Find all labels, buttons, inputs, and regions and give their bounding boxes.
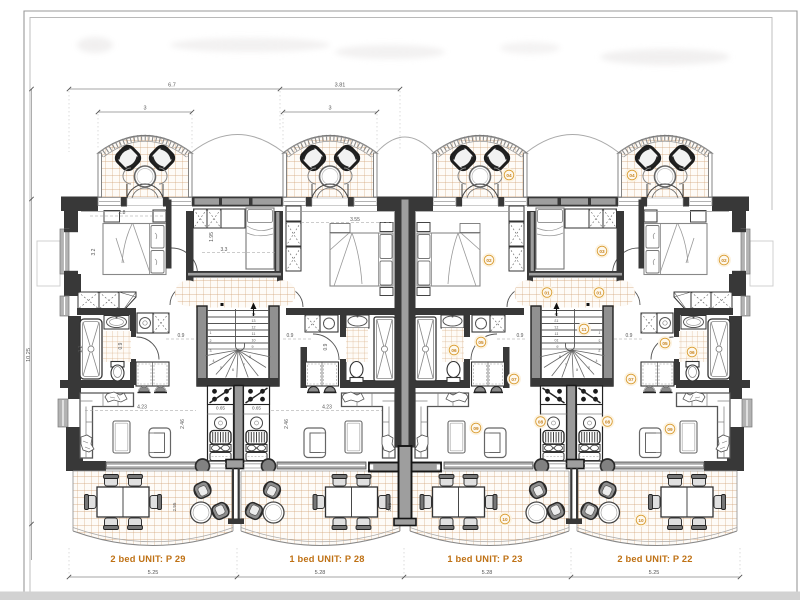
svg-text:2.46: 2.46 (284, 419, 290, 429)
svg-text:10: 10 (252, 339, 256, 343)
svg-text:3.81: 3.81 (335, 83, 346, 89)
svg-text:08: 08 (605, 419, 611, 424)
svg-text:10: 10 (638, 518, 644, 523)
svg-text:2.46: 2.46 (180, 419, 186, 429)
svg-text:0.65: 0.65 (252, 406, 261, 411)
svg-text:1.95: 1.95 (209, 232, 215, 242)
svg-text:5.25: 5.25 (649, 570, 660, 576)
svg-text:3.2: 3.2 (91, 248, 97, 255)
svg-text:02: 02 (721, 258, 727, 263)
svg-text:2.55: 2.55 (387, 502, 392, 511)
svg-text:0.9: 0.9 (118, 342, 124, 349)
svg-text:7: 7 (243, 363, 245, 367)
svg-text:07: 07 (628, 377, 634, 382)
svg-text:3.3: 3.3 (221, 247, 228, 253)
svg-text:3.55: 3.55 (350, 217, 360, 223)
svg-text:2: 2 (210, 339, 212, 343)
svg-text:5.25: 5.25 (148, 570, 159, 576)
svg-text:12: 12 (252, 326, 256, 330)
svg-text:9: 9 (252, 345, 254, 349)
svg-text:08: 08 (538, 419, 544, 424)
svg-text:11: 11 (582, 327, 587, 332)
svg-text:06: 06 (451, 348, 457, 353)
svg-text:5: 5 (220, 366, 222, 370)
svg-text:13: 13 (252, 319, 256, 323)
svg-text:6.7: 6.7 (168, 83, 176, 89)
svg-text:1 bed UNIT: P 28: 1 bed UNIT: P 28 (289, 554, 364, 564)
svg-text:11: 11 (252, 332, 256, 336)
svg-text:2 bed UNIT: P 22: 2 bed UNIT: P 22 (617, 554, 692, 564)
svg-text:01: 01 (596, 290, 602, 295)
svg-text:2.55: 2.55 (172, 502, 177, 511)
svg-text:0.9: 0.9 (517, 333, 524, 339)
svg-text:10.25: 10.25 (26, 348, 32, 362)
svg-text:1 bed UNIT: P 23: 1 bed UNIT: P 23 (447, 554, 522, 564)
svg-text:2.8: 2.8 (119, 210, 126, 216)
svg-text:0.65: 0.65 (216, 406, 225, 411)
svg-text:09: 09 (667, 427, 673, 432)
svg-text:06: 06 (689, 350, 695, 355)
svg-text:4.23: 4.23 (137, 405, 147, 411)
svg-text:5.28: 5.28 (482, 570, 493, 576)
svg-text:03: 03 (599, 249, 605, 254)
svg-text:04: 04 (629, 173, 635, 178)
svg-text:1: 1 (210, 331, 212, 335)
svg-text:3: 3 (210, 349, 212, 353)
svg-text:2 bed UNIT: P 29: 2 bed UNIT: P 29 (110, 554, 185, 564)
svg-text:0.9: 0.9 (626, 333, 633, 339)
svg-text:0.9: 0.9 (323, 343, 329, 350)
svg-text:5.28: 5.28 (315, 570, 326, 576)
svg-text:0.9: 0.9 (178, 333, 185, 339)
svg-text:05: 05 (478, 340, 484, 345)
svg-text:09: 09 (473, 426, 479, 431)
svg-text:10: 10 (502, 517, 508, 522)
svg-text:3: 3 (143, 106, 146, 112)
svg-text:6: 6 (232, 368, 234, 372)
svg-text:01: 01 (544, 290, 550, 295)
svg-text:0.9: 0.9 (287, 333, 294, 339)
svg-text:02: 02 (486, 258, 492, 263)
svg-text:4: 4 (213, 359, 215, 363)
svg-text:3: 3 (328, 106, 331, 112)
svg-text:07: 07 (511, 377, 517, 382)
svg-text:05: 05 (662, 341, 668, 346)
svg-text:4.23: 4.23 (322, 405, 332, 411)
svg-text:8: 8 (249, 355, 251, 359)
svg-text:04: 04 (506, 173, 512, 178)
svg-text:2.2: 2.2 (78, 345, 84, 352)
